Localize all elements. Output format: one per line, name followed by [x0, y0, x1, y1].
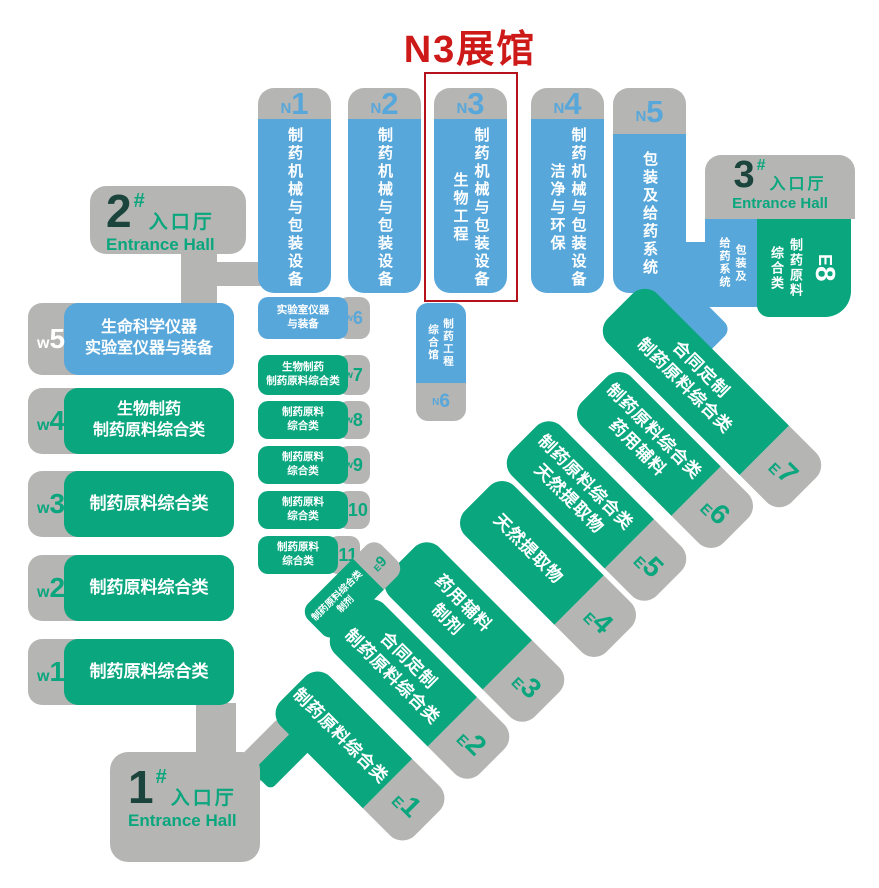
hall-3-packaging: 包装及给药系统 — [705, 219, 759, 307]
hall-w4-label: w4 — [37, 405, 65, 437]
hall-n1: N1 制药机械与包装设备 — [258, 88, 331, 293]
hall-w3-label: w3 — [37, 488, 65, 520]
hall-n1-category: 制药机械与包装设备 — [258, 119, 331, 293]
hall-e8-label: E8 — [809, 254, 841, 282]
hall-n5: N5 包装及给药系统 — [613, 88, 686, 293]
hall-w11-category: 制药原料综合类 — [258, 536, 338, 574]
entrance-hall-1-en: Entrance Hall — [128, 811, 260, 831]
hall-w4: w4 生物制药制药原料综合类 — [28, 388, 234, 454]
hall-n2-label: N2 — [348, 88, 421, 119]
exhibition-floor-map: N3展馆 N1 制药机械与包装设备 N2 制药机械与包装设备 N3 制药机械与包… — [0, 0, 879, 888]
hall-n5-category: 包装及给药系统 — [613, 134, 686, 293]
hall-n2: N2 制药机械与包装设备 — [348, 88, 421, 293]
hall-w7: 生物制药制药原料综合类 w7 — [258, 355, 370, 395]
entrance-hall-2-title: 2 # 入口厅 — [106, 190, 246, 234]
connector-entrance2-stem — [181, 250, 217, 307]
entrance-hall-1-title: 1 # 入口厅 — [128, 766, 260, 810]
hall-w4-category: 生物制药制药原料综合类 — [64, 388, 234, 454]
hall-n1-label: N1 — [258, 88, 331, 119]
hall-n4-label: N4 — [531, 88, 604, 119]
entrance-hall-3-title: 3 # 入口厅 — [705, 157, 855, 194]
n3-highlight-box — [424, 72, 518, 302]
hall-w10: 制药原料综合类 w10 — [258, 491, 370, 529]
hall-w9-category: 制药原料综合类 — [258, 446, 348, 484]
page-title: N3展馆 — [404, 18, 537, 73]
hall-w9: 制药原料综合类 w9 — [258, 446, 370, 484]
entrance-hall-3: 3 # 入口厅 Entrance Hall — [705, 155, 855, 219]
hall-n4: N4 制药机械与包装设备洁净与环保 — [531, 88, 604, 293]
hall-w1: w1 制药原料综合类 — [28, 639, 234, 705]
entrance-hall-2: 2 # 入口厅 Entrance Hall — [90, 186, 246, 254]
hash-glyph: # — [156, 766, 167, 789]
hash-glyph: # — [757, 157, 766, 175]
hall-w8-category: 制药原料综合类 — [258, 401, 348, 439]
hall-w2: w2 制药原料综合类 — [28, 555, 234, 621]
hall-w5-category: 生命科学仪器实验室仪器与装备 — [64, 303, 234, 375]
connector-entrance2-arm — [217, 262, 261, 286]
hall-w1-label: w1 — [37, 656, 65, 688]
entrance-hall-1: 1 # 入口厅 Entrance Hall — [110, 752, 260, 862]
hall-e8-category: 制药原料综合类 — [767, 238, 805, 298]
hall-w6: 实验室仪器与装备 w6 — [258, 297, 370, 339]
hall-n5-label: N5 — [613, 88, 686, 134]
hall-w1-category: 制药原料综合类 — [64, 639, 234, 705]
entrance-hall-3-en: Entrance Hall — [705, 195, 855, 212]
hall-n6-label: N6 — [416, 383, 466, 421]
hall-n2-category: 制药机械与包装设备 — [348, 119, 421, 293]
hall-w5-label: w5 — [37, 323, 65, 355]
hall-n6-category: 制药工程综合馆 — [416, 303, 466, 383]
hall-w3: w3 制药原料综合类 — [28, 471, 234, 537]
hall-n6: 制药工程综合馆 N6 — [416, 303, 466, 421]
hall-w2-label: w2 — [37, 572, 65, 604]
hall-w3-category: 制药原料综合类 — [64, 471, 234, 537]
hash-glyph: # — [134, 190, 145, 213]
hall-e8: 制药原料综合类 E8 — [757, 219, 851, 317]
hall-w6-category: 实验室仪器与装备 — [258, 297, 348, 339]
hall-w8: 制药原料综合类 w8 — [258, 401, 370, 439]
hall-w10-category: 制药原料综合类 — [258, 491, 348, 529]
entrance-hall-2-en: Entrance Hall — [106, 235, 246, 255]
hall-w7-category: 生物制药制药原料综合类 — [258, 355, 348, 395]
connector-entrance1-stem — [196, 703, 236, 755]
hall-w2-category: 制药原料综合类 — [64, 555, 234, 621]
hall-w5: w5 生命科学仪器实验室仪器与装备 — [28, 303, 234, 375]
hall-n4-category: 制药机械与包装设备洁净与环保 — [531, 119, 604, 293]
